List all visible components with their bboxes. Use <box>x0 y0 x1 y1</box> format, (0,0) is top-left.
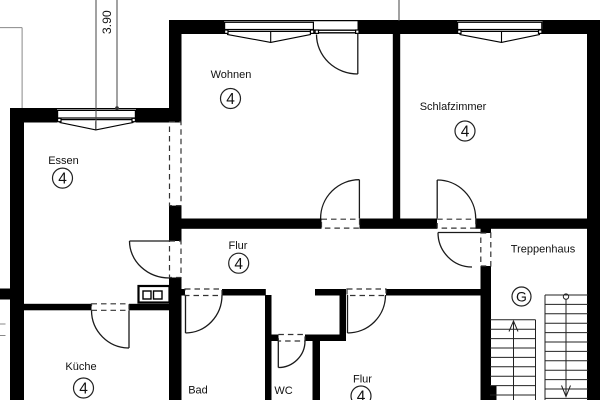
svg-text:Küche: Küche <box>65 361 96 373</box>
svg-text:4: 4 <box>461 124 470 141</box>
svg-text:4: 4 <box>79 381 88 398</box>
svg-text:4: 4 <box>234 256 243 273</box>
svg-text:4: 4 <box>226 91 235 108</box>
svg-text:3.90: 3.90 <box>100 10 114 34</box>
svg-text:Flur: Flur <box>229 240 248 252</box>
svg-text:Bad: Bad <box>188 385 208 397</box>
svg-text:Schlafzimmer: Schlafzimmer <box>420 101 487 113</box>
svg-text:Wohnen: Wohnen <box>211 69 252 81</box>
svg-text:WC: WC <box>274 385 292 397</box>
svg-text:Treppenhaus: Treppenhaus <box>511 243 576 255</box>
svg-text:Essen: Essen <box>48 155 79 167</box>
svg-text:4: 4 <box>58 171 67 188</box>
svg-text:Flur: Flur <box>353 374 372 386</box>
svg-text:4: 4 <box>357 389 366 400</box>
svg-text:G: G <box>516 289 527 305</box>
